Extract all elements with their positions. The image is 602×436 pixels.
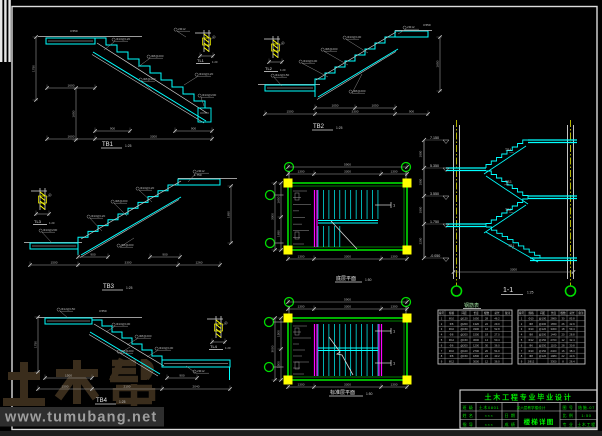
cad-line [273,54,278,58]
cad-path [443,196,449,200]
cad-text: Φ12 [449,338,455,342]
cad-text: @200 [460,322,468,326]
cad-text: 1650 [71,110,75,117]
tb-cell-r2a: 姓 名 [463,412,474,418]
cad-text: 1650 [435,60,439,67]
cad-text: @250 [539,343,547,347]
cad-sheet: 17501650160090090016003300Φ10@120Φ8@200Φ… [0,0,602,436]
brand-watermark-glyphs [3,359,152,406]
cad-line [398,29,406,34]
cad-text: 3300 [551,360,557,364]
cad-text: Φ10@100 [116,322,130,326]
cad-text: 1300 [298,255,305,259]
cad-text: 900 [409,110,414,114]
cad-line [273,40,278,44]
cad-line [509,152,514,153]
cad-text: 1300 [391,383,398,387]
cad-rect [395,31,428,37]
section-1-1: TB4TB3TB2TB17.1505.3503.5501.750-0.05018… [419,120,578,296]
cad-line [184,76,198,85]
cad-text: 1 [441,316,443,320]
cad-text: 8 [441,354,443,358]
cad-text: Φ8 [529,322,533,326]
titleblock-project: 某六层教学楼设计 [517,405,546,410]
cad-text: 1500 [65,374,72,378]
cad-text: 1440 [551,333,557,337]
cad-text: 2100 [124,385,131,389]
cad-text: 22 [562,354,565,358]
cad-text: Φ8 [450,354,454,358]
cad-text: 规格 [528,311,534,315]
cad-text: Φ8@200 [139,334,152,338]
cad-text: 5 [521,338,523,342]
cad-path [443,258,449,262]
cad-text: 3.550 [430,192,439,196]
cad-text: 1300 [298,305,305,309]
cad-circle [198,94,201,97]
cad-circle [39,229,42,232]
cad-text: @120 [539,327,547,331]
cad-text: Φ10 [449,316,455,320]
drawing-frame [0,0,597,430]
cad-text: 28 [485,316,488,320]
cad-line [93,52,206,121]
cad-text: 3300 [344,255,351,259]
cad-rect [295,193,299,200]
cad-path [56,360,98,404]
cad-text: TB2 [505,208,511,212]
cad-rect [288,183,407,250]
cad-text: @100 [460,349,468,353]
tb2-scale: 1:25 [336,126,343,130]
cad-text: 1500 [287,110,294,114]
cad-text: 3 [441,327,443,331]
cad-rect [0,0,2,62]
cad-text: Φ12@150 [275,73,289,77]
cad-circle [266,191,275,200]
cad-text: 编号 [439,311,445,315]
tb4-scale: 1:25 [119,400,126,404]
cad-text: 22 [485,322,488,326]
tb1-title: TB1 [102,142,114,148]
cad-text: 5.350 [430,164,439,168]
cad-circle [299,60,302,63]
cad-rect [284,314,293,323]
cad-text: 46.2 [494,316,500,320]
cad-text: 6 [521,343,523,347]
cad-text: 1800 [419,178,423,185]
cad-text: 1600 [68,84,75,88]
cad-text: 1500 [276,361,280,368]
cad-text: 1050 [372,104,379,108]
cad-text: 9 [441,360,443,364]
cad-text: 1 [521,316,523,320]
cad-text: 16 [562,349,565,353]
cad-circle [195,73,198,76]
cad-text: 1500 [276,330,280,337]
cad-text: 1320 [473,322,479,326]
tb1-level-note: 3.550 [70,29,78,33]
cad-text: 30 [562,316,565,320]
cad-text: 3000 [473,360,479,364]
tb-cell-r3c: 成 绩 [505,421,516,427]
cad-text: @100 [539,316,547,320]
cad-text: 1650 [473,316,479,320]
cad-text: 3600 [473,338,479,342]
cad-text: 编号 [519,311,525,315]
cad-text: Φ10@120 [140,186,154,190]
cad-text: 900 [179,374,184,378]
cad-line [204,39,209,43]
cad-text: Φ10 [528,327,534,331]
cad-text: 1650 [551,322,557,326]
cad-text: 2Φ12 [178,27,186,31]
cad-text: 1800 [473,354,479,358]
cad-circle [343,36,346,39]
cad-text: 间距 [540,311,546,315]
cad-rect [288,318,407,380]
cad-circle [87,215,90,218]
cad-text: Φ8@200 [121,349,134,353]
cad-text: 3000 [270,345,274,352]
cad-text: 1650 [276,230,280,237]
cad-text: 59.4 [569,327,575,331]
tl1-scale: 1:20 [212,60,218,64]
cad-line [92,55,204,124]
watermark-url: www.tumubang.net [4,410,157,426]
cad-text: 3300 [473,327,479,331]
cad-text: Φ10@200 [43,228,57,232]
cad-circle [265,318,274,327]
cad-text: Φ10@100 [159,346,173,350]
titleblock-title: 土木工程专业毕业设计 [485,393,573,402]
cad-line [40,197,45,201]
stair-section-tb2: 16501050105015003300900Φ10@100Φ8@200Φ10@… [258,25,442,116]
cad-text: 28 [562,343,565,347]
cad-text: 8 [562,360,564,364]
cad-circle [349,90,352,93]
cad-text: @200 [539,333,547,337]
cad-text: Φ10@120 [199,72,213,76]
cad-text: 20 [485,349,488,353]
cad-text: Φ10@120 [91,214,105,218]
tb-cell-r2c: 日 期 [505,412,516,418]
cad-text: 3300 [344,305,351,309]
beam-details [31,30,284,344]
tb-cell-r3e: 专 业 [563,421,574,427]
cad-text: 9 [521,360,523,364]
cad-text: 长度 [551,311,557,315]
cad-text: 4 [521,333,523,337]
cad-text: 5900 [344,298,351,302]
cad-text: Φ8 [529,333,533,337]
cad-rect [284,179,293,188]
cad-text: -0.050 [430,254,440,258]
cad-text: Φ8@200 [143,77,156,81]
cad-text: 24 [485,354,488,358]
cad-path [3,362,45,402]
cad-text: 规格 [449,311,455,315]
tb2-level-note: 3.550 [423,23,431,27]
tb-cell-r1a: 班 级 [463,404,474,410]
cad-text: 2200 [419,237,423,244]
cad-text: 7 [441,349,443,353]
tl4-label: TL4 [210,344,218,349]
cad-path [486,227,540,259]
tb3-level-note: 1.750 [194,173,202,177]
cad-text: TB1 [508,244,514,248]
cad-text: 1300 [391,170,398,174]
plan1-scale: 1:50 [365,278,372,282]
tb-cell-r2f: 1:50 [581,413,591,418]
cad-rect [403,314,412,323]
cad-circle [271,74,274,77]
cad-text: Φ8@200 [115,199,128,203]
cad-rect [178,179,220,185]
tb-cell-r3f: 土木工程 [577,421,595,427]
cad-text: 3300 [344,383,351,387]
cad-text: 1 [393,361,396,366]
cad-text: 7.150 [430,136,439,140]
cad-circle [321,48,324,51]
cad-text: 根数 [484,311,490,315]
cad-text: Φ10@200 [202,93,216,97]
cad-line [204,34,209,38]
cad-text: 1750 [31,65,35,72]
cad-rect [291,321,404,377]
cad-text: 42.9 [569,322,575,326]
cad-text: 27.0 [494,333,500,337]
cad-rect [4,0,6,62]
plan2-scale: 1:50 [366,392,373,396]
cad-canvas: 17501650160090090016003300Φ10@120Φ8@200Φ… [0,0,602,436]
cad-text: 30 [485,343,488,347]
cad-text: 54.0 [494,349,500,353]
cad-text: Φ12@150 [61,307,75,311]
cad-circle [112,38,115,41]
cad-text: 1300 [298,170,305,174]
cad-text: Φ8@200 [325,47,338,51]
cad-text: 2 [521,322,523,326]
tl2-scale: 1:20 [280,68,286,72]
rebar-table-title: 钢筋表 [464,302,479,309]
cad-line [40,192,45,196]
cad-text: 1260 [196,261,203,265]
cad-path [95,38,205,108]
cad-text: 1300 [391,255,398,259]
cad-text: 1800 [419,206,423,213]
cad-text: @150 [460,354,468,358]
cad-text: Φ6 [450,343,454,347]
tb3-title: TB3 [103,284,115,290]
cad-path [110,359,151,381]
cad-text: 8 [521,354,523,358]
cad-text: 28.8 [569,333,575,337]
cad-text: 26.4 [569,360,575,364]
cad-line [81,181,181,239]
tb4-level-note: 3.550 [99,309,107,313]
cad-text: 2700 [473,349,479,353]
cad-text: Φ12 [528,338,534,342]
watermark-band: www.tumubang.net [0,407,164,427]
cad-text: 1300 [391,305,398,309]
cad-circle [117,244,120,247]
cad-rect [295,328,299,335]
cad-line [216,325,221,329]
tb2-title: TB2 [313,124,325,130]
cad-text: Φ10@120 [116,37,130,41]
cad-text: 1500 [51,261,58,265]
cad-text: TB3 [505,180,511,184]
cad-text: 1650 [276,196,280,203]
cad-text: Φ10@100 [347,35,361,39]
cad-text: Φ10 [449,349,455,353]
cad-text: 1500 [473,333,479,337]
cad-rect [403,179,412,188]
cad-circle [57,308,60,311]
cad-line [324,51,348,65]
cad-text: 14 [485,338,488,342]
cad-line [331,221,357,249]
cad-text: 总长 [569,311,575,315]
cad-text: 3 [521,327,523,331]
cad-text: 1600 [68,135,75,139]
cad-text: 18 [485,333,488,337]
cad-text: TB4 [505,148,511,152]
cad-path [315,37,395,85]
plan1-title: 底层平面 [336,275,356,282]
cad-text: 20 [562,333,565,337]
cad-text: Φ8@200 [121,243,134,247]
cad-text: 1200 [473,343,479,347]
cad-text: 900 [110,127,115,131]
cad-text: @200 [460,343,468,347]
cad-line [90,218,102,231]
plan2-title: 标准层平面 [330,389,355,396]
cad-text: Φ10 [449,327,455,331]
cad-rect [291,186,404,247]
cad-text: 2Φ12 [197,369,205,373]
cad-text: Φ6 [529,343,533,347]
cad-text: 3300 [344,170,351,174]
cad-text: Φ8 [450,322,454,326]
tl3-label: TL3 [34,219,42,224]
cad-text: 2Φ12 [528,360,535,364]
tb-cell-r2e: 比 例 [563,412,574,418]
titleblock-drawing-name: 楼梯详图 [524,417,555,426]
stair-section-tb1: 17501650160090090016003300Φ10@120Φ8@200Φ… [31,27,216,142]
stair-section-tb3: 1650900900150033001260Φ10@120Φ8@200Φ10@1… [24,169,237,267]
cad-text: @200 [539,322,547,326]
cad-line [216,320,221,324]
cad-line [60,311,68,318]
cad-text: 3300 [150,135,157,139]
cad-text: 2 [441,322,443,326]
cad-text: 3300 [551,327,557,331]
cad-text: 3300 [510,268,517,272]
cad-line [216,334,221,338]
cad-text: 5900 [344,163,351,167]
cad-text: 32.4 [569,338,575,342]
tb3-scale: 1:25 [126,286,133,290]
tb-cell-r3b: ××× [485,422,494,427]
cad-text: Φ8 [529,354,533,358]
cad-text: 1300 [298,383,305,387]
cad-text: 长度 [473,311,479,315]
cad-line [346,39,368,53]
cad-circle [147,55,150,58]
cad-path [443,140,449,144]
cad-text: 900 [162,253,167,257]
cad-text: 36.0 [494,343,500,347]
section-title: 1-1 [503,287,513,294]
cad-text: 30.8 [569,343,575,347]
cad-text: Φ12 [449,360,455,364]
cad-text: 85.8 [569,316,575,320]
cad-text: Φ8@200 [151,54,164,58]
cad-text: 4 [441,333,443,337]
cad-circle [566,286,576,296]
cad-line [40,206,45,210]
cad-text: 1800 [419,150,423,157]
cad-text: 2860 [551,316,557,320]
cad-text: 1980 [551,354,557,358]
section-scale: 1:25 [527,291,534,295]
cad-line [94,324,164,366]
cad-text: 3300 [125,261,132,265]
tb-cell-r1e: 图 号 [563,404,574,410]
cad-rect [284,246,293,255]
cad-text: 36.0 [494,360,500,364]
cad-text: 3300 [352,110,359,114]
cad-text: 根数 [560,311,566,315]
cad-text: 16 [485,327,488,331]
plan-typical-floor: 5900130033001300300015001500130033001300… [265,298,412,390]
cad-line [201,97,204,106]
tl2-label: TL2 [265,66,273,71]
cad-text: @150 [460,338,468,342]
cad-rect [403,376,412,385]
tb-cell-r2b: ××× [485,413,494,418]
cad-text: 900 [90,253,95,257]
tb-cell-r1f: 结施-07 [578,404,595,410]
cad-line [302,63,328,77]
cad-circle [265,363,274,372]
cad-text: 备注 [505,311,511,315]
cad-text: 间距 [461,311,467,315]
cad-text: Φ8 [450,333,454,337]
cad-circle [403,26,406,29]
cad-line [509,212,514,213]
cad-text: @120 [460,316,468,320]
cad-path [329,337,353,375]
tl4-scale: 1:20 [225,346,231,350]
cad-text: @120 [539,354,547,358]
cad-text: 18 [562,327,565,331]
cad-text: 43.2 [494,354,500,358]
cad-path [486,171,528,199]
cad-text: 12 [485,360,488,364]
cad-circle [266,239,275,248]
cad-text: 50.4 [494,338,500,342]
cad-path [486,199,528,227]
cad-circle [155,347,158,350]
cad-text: @200 [460,333,468,337]
cad-text: 6 [441,343,443,347]
cad-text: 1 [393,203,396,208]
tb-cell-r3a: 指 导 [463,421,474,427]
cad-circle [452,286,462,296]
